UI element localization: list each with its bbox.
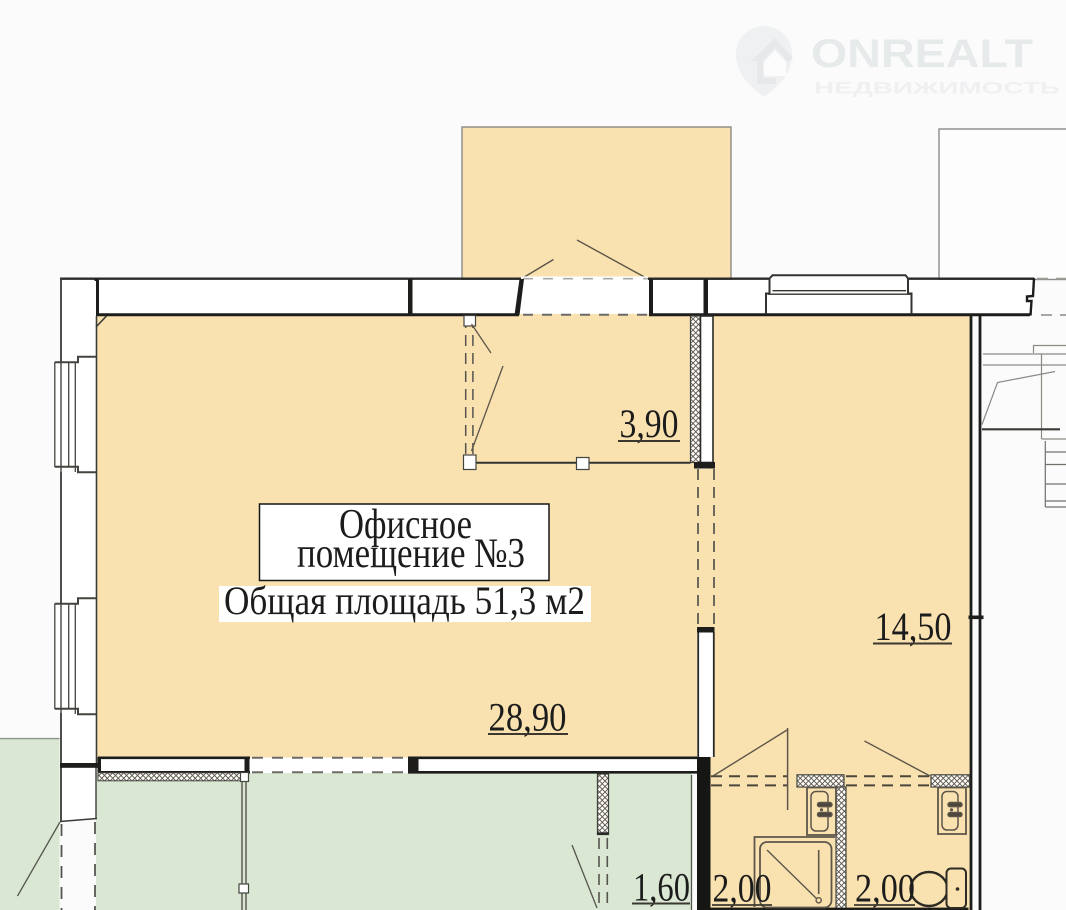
svg-text:2,00: 2,00 — [855, 866, 915, 910]
svg-text:2,00: 2,00 — [713, 866, 772, 910]
svg-text:14,50: 14,50 — [875, 604, 952, 649]
svg-text:помещение №3: помещение №3 — [297, 531, 525, 577]
svg-text:Общая площадь 51,3 м2: Общая площадь 51,3 м2 — [224, 578, 585, 623]
svg-text:28,90: 28,90 — [489, 695, 567, 740]
svg-text:3,90: 3,90 — [620, 401, 679, 446]
svg-text:НЕДВИЖИМОСТЬ: НЕДВИЖИМОСТЬ — [814, 79, 1060, 98]
svg-text:ONREALT: ONREALT — [811, 32, 1033, 76]
